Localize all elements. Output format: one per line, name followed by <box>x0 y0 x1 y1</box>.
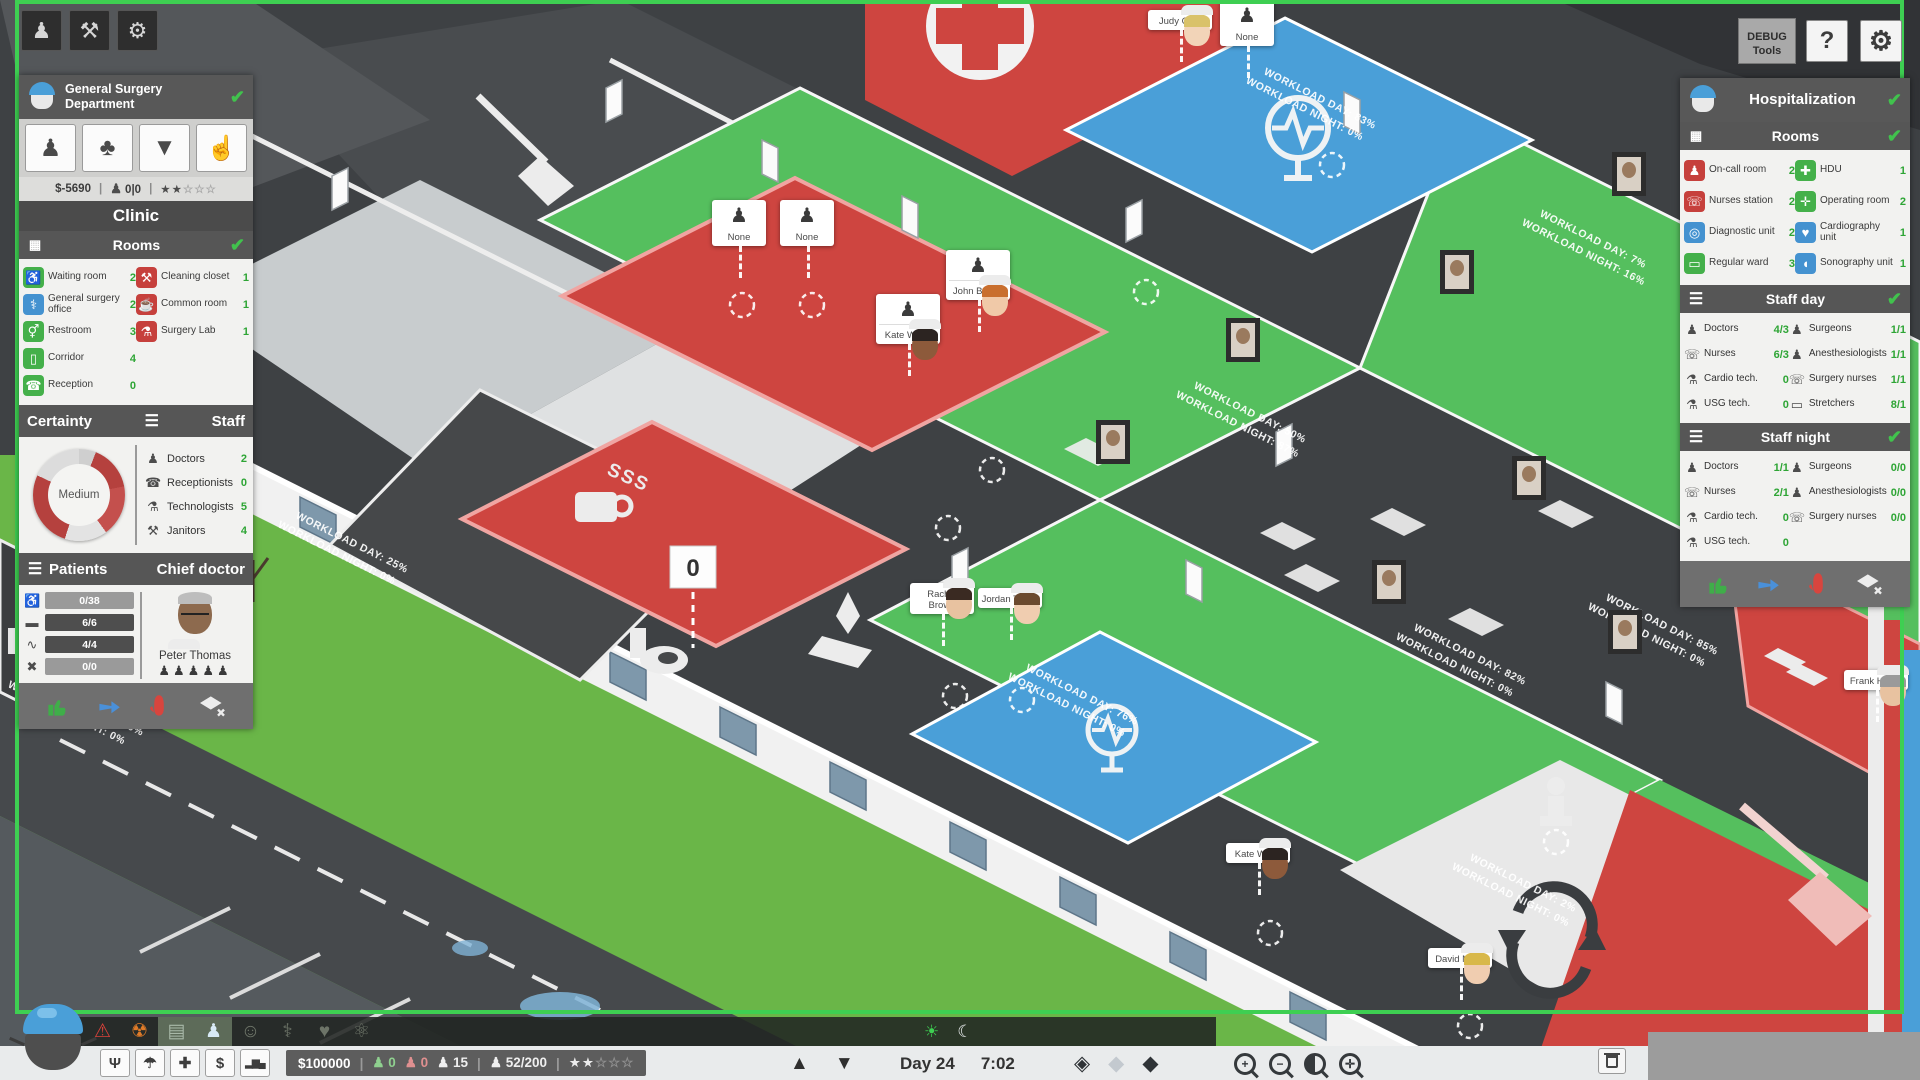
room-list-item[interactable]: ♟ On-call room 2 <box>1684 155 1795 186</box>
staff-list-item[interactable]: ☎ Receptionists 0 <box>145 471 247 495</box>
room-list-item[interactable]: ▯ Corridor 4 <box>23 345 136 372</box>
staff-count: 0/0 <box>1891 512 1906 524</box>
walker-icon: ♟ <box>110 181 122 196</box>
staff-list-item[interactable]: ☏ Surgery nurses 0/0 <box>1789 505 1906 530</box>
patient-stat: ♿ 0/38 <box>24 592 134 609</box>
nurse-icon: ☏ <box>1684 485 1700 501</box>
certainty-title: Certainty <box>27 413 92 430</box>
staff-label: Surgery nurses <box>1809 374 1887 385</box>
room-label: General surgery office <box>48 294 126 315</box>
finance-icon: $ <box>216 1055 224 1072</box>
waiting-room-icon: ♿ <box>23 267 44 288</box>
staff-label: Technologists <box>167 501 235 513</box>
character-name: None <box>715 230 763 243</box>
room-list-item[interactable]: ▭ Regular ward 3 <box>1684 248 1795 279</box>
department-title: General Surgery Department <box>65 82 222 112</box>
room-label: Sonography unit <box>1820 258 1896 269</box>
dept-tab-cardiology[interactable]: ♥ <box>306 1017 343 1046</box>
stats-icon: ▂▆▄ <box>245 1058 264 1069</box>
cardio-tech-icon: ⚗ <box>1684 510 1700 526</box>
stop-button[interactable] <box>144 694 174 718</box>
diagnostics-dept-icon: ▤ <box>168 1020 186 1043</box>
rooms-icon: ▦ <box>27 237 43 253</box>
check-icon: ✔ <box>1887 126 1902 147</box>
patients-title: Patients <box>49 561 107 578</box>
patients-icon: ♟ <box>490 1055 502 1070</box>
operating-room-icon: ✛ <box>1795 191 1816 212</box>
character-name: None <box>783 230 831 243</box>
demolish-button[interactable] <box>1598 1048 1626 1074</box>
department-header[interactable]: General Surgery Department ✔ <box>19 75 253 119</box>
hire-staff-button[interactable]: ♟ <box>25 124 76 172</box>
room-list-item[interactable]: ◎ Diagnostic unit 2 <box>1684 217 1795 248</box>
day-label: Day 24 <box>900 1054 955 1074</box>
dept-tab-orthopedics[interactable]: ⚕ <box>269 1017 306 1046</box>
surgery-office-icon: ⚕ <box>23 294 44 315</box>
check-icon: ✔ <box>230 235 245 256</box>
room-label: Cardiography unit <box>1820 222 1896 243</box>
clinic-title: Clinic <box>113 206 159 226</box>
help-button[interactable]: ? <box>1806 20 1848 62</box>
usg-tech-icon: ⚗ <box>1684 397 1700 413</box>
dept-tab-radiology[interactable]: ☢ <box>121 1017 158 1046</box>
certainty-staff-bar[interactable]: Certainty ☰ Staff <box>19 405 253 437</box>
room-label: Cleaning closet <box>161 272 239 283</box>
character-card[interactable]: ♟ John Brown <box>946 250 1010 300</box>
uniforms-button[interactable]: ▼ <box>139 124 190 172</box>
dept-clinic-icon: ☺ <box>241 1021 260 1043</box>
pickaxe-icon: ⚒ <box>80 18 100 44</box>
ambulance-button[interactable]: ✚ <box>170 1049 200 1077</box>
list-icon: ☰ <box>1688 289 1704 309</box>
character-card[interactable]: Jordan Taylor <box>978 588 1042 608</box>
staff-count: 1/1 <box>1891 374 1906 386</box>
statistics-button[interactable]: ▂▆▄ <box>240 1049 270 1077</box>
hospital-status-bar: $100000 | ♟ 0 ♟ 0 ♟ 15 | ♟ 52/200 | ★★☆☆… <box>286 1050 646 1076</box>
room-count: 1 <box>243 326 249 338</box>
sun-icon[interactable]: ☀ <box>924 1022 939 1042</box>
staff-day-list: ♟ Doctors 4/3 ☏ Nurses 6/3 ⚗ Cardio tech… <box>1680 313 1910 423</box>
room-list-item[interactable]: ⚗ Surgery Lab 1 <box>136 318 249 345</box>
person-icon: ♟ <box>1223 4 1271 30</box>
doctor-icon: ♟ <box>145 451 161 467</box>
staff-count: 1/1 <box>1891 324 1906 336</box>
staff-list-item[interactable]: ☏ Surgery nurses 1/1 <box>1789 367 1906 392</box>
assign-button[interactable] <box>94 694 124 718</box>
top-left-toolbar: ♟⚒⚙ <box>21 10 158 51</box>
room-count: 1 <box>243 299 249 311</box>
rooms-section-title: Rooms <box>49 237 224 253</box>
room-list-item[interactable]: ⚒ Cleaning closet 1 <box>136 264 249 291</box>
restroom-icon <box>1547 777 1565 795</box>
approve-button[interactable] <box>1704 572 1734 596</box>
insurance-button[interactable]: ☂ <box>135 1049 165 1077</box>
regular-ward-icon: ▭ <box>1684 253 1705 274</box>
patient-stat-value: 6/6 <box>45 614 134 631</box>
staff-count: 1/1 <box>1774 462 1789 474</box>
gear-icon: ⚙ <box>128 18 148 44</box>
bed-icon: ▬ <box>24 615 40 630</box>
staff-list-item[interactable]: ⚒ Janitors 4 <box>145 519 247 543</box>
chief-portrait <box>167 592 223 648</box>
clear-floor-button[interactable] <box>195 694 229 718</box>
view-flat-button[interactable]: ◈ <box>1074 1051 1090 1076</box>
staff-alert-count: 0 <box>421 1055 429 1070</box>
zoom-button-4[interactable]: ✛ <box>1339 1053 1361 1075</box>
room-list-item[interactable]: ✚ HDU 1 <box>1795 155 1906 186</box>
staff-list-item[interactable]: ▭ Stretchers 8/1 <box>1789 392 1906 417</box>
doctor-icon: ♟ <box>1684 322 1700 338</box>
department-actions <box>19 683 253 729</box>
floor-down-button[interactable]: ▼ <box>835 1053 854 1075</box>
staff-count: 4/3 <box>1774 324 1789 336</box>
staff-list-item[interactable]: ⚗ Cardio tech. 0 <box>1684 505 1789 530</box>
staff-title: Staff <box>212 413 245 430</box>
certainty-value: Medium <box>59 489 100 501</box>
reception-icon: ☎ <box>23 375 44 396</box>
surgery-nurse-icon: ☏ <box>1789 510 1805 526</box>
rooms-icon: ▦ <box>1688 128 1704 144</box>
dept-neuro-icon: ⚛ <box>353 1020 370 1043</box>
room-list-item[interactable]: ♥ Cardiography unit 1 <box>1795 217 1906 248</box>
surgery-dept-icon: ♟ <box>205 1020 222 1043</box>
patient-stat-value: 0/0 <box>45 658 134 675</box>
room-list-item[interactable]: ⚕ General surgery office 2 <box>23 291 136 318</box>
chief-doctor-name: Peter Thomas <box>142 650 248 662</box>
staff-label: Nurses <box>1704 349 1770 360</box>
room-list-item[interactable]: ☕ Common room 1 <box>136 291 249 318</box>
trash-icon <box>1606 1055 1618 1068</box>
staff-count: 6/3 <box>1774 349 1789 361</box>
patients-body: ♿ 0/38 ▬ 6/6 ∿ 4/4 ✖ 0/0 Peter Thomas ♟♟… <box>19 585 253 683</box>
cleaning-closet-icon: ⚒ <box>136 267 157 288</box>
clear-floor-button[interactable] <box>1852 572 1886 596</box>
debug-tools-button[interactable]: DEBUG Tools <box>1738 18 1796 64</box>
surgery-lab-icon: ⚗ <box>136 321 157 342</box>
sonography-unit-icon: ◖ <box>1795 253 1816 274</box>
staff-label: Janitors <box>167 525 235 537</box>
check-icon: ✔ <box>1887 289 1902 310</box>
shirt-icon: ▼ <box>153 134 177 162</box>
visitors-icon: ♟ <box>437 1055 449 1070</box>
room-label: Reception <box>48 380 126 391</box>
room-label: HDU <box>1820 165 1896 176</box>
certainty-gauge[interactable]: Medium <box>33 449 125 541</box>
finance-button[interactable]: $ <box>205 1049 235 1077</box>
staff-count: 5 <box>241 501 247 513</box>
department-tools: ♟♣▼☝ <box>19 119 253 177</box>
gear-icon: ⚙ <box>1869 26 1893 57</box>
department-panel: General Surgery Department ✔ ♟♣▼☝ $-5690… <box>19 75 253 729</box>
ambulance-icon: ✚ <box>179 1054 192 1072</box>
seat-icon: ♿ <box>24 593 40 609</box>
person-icon: ♟ <box>32 18 52 44</box>
surgeon-icon <box>1688 85 1718 115</box>
room-list-item[interactable]: ⚥ Restroom 3 <box>23 318 136 345</box>
patient-stat: ∿ 4/4 <box>24 636 134 653</box>
department-walkers: 0|0 <box>125 184 141 196</box>
character-card[interactable]: ♟ Kate White <box>876 294 940 344</box>
department-status: $-5690 | ♟ 0|0 | ★★☆☆☆ <box>19 177 253 201</box>
staff-label: Surgery nurses <box>1809 512 1887 523</box>
staff-day-bar[interactable]: ☰ Staff day ✔ <box>1680 285 1910 313</box>
pulse-icon: ∿ <box>24 637 40 653</box>
room-list-item[interactable]: ♿ Waiting room 2 <box>23 264 136 291</box>
common-room-icon: ☕ <box>136 294 157 315</box>
staff-label: Cardio tech. <box>1704 374 1779 385</box>
moon-icon[interactable]: ☾ <box>957 1022 972 1042</box>
staff-label: Doctors <box>167 453 235 465</box>
staff-list-item[interactable]: ☏ Nurses 2/1 <box>1684 480 1789 505</box>
staff-day-title: Staff day <box>1710 291 1881 307</box>
build-button[interactable]: ⚒ <box>69 10 110 51</box>
staff-list-item[interactable]: ♟ Surgeons 1/1 <box>1789 317 1906 342</box>
surgeon-icon <box>27 82 57 112</box>
zoom-button-3[interactable] <box>1304 1053 1326 1075</box>
staff-list-item[interactable]: ♟ Anesthesiologists 1/1 <box>1789 342 1906 367</box>
network-icon: Ψ <box>109 1055 121 1072</box>
character-card[interactable]: Rachel Brown <box>910 583 974 614</box>
room-label: Nurses station <box>1709 196 1785 207</box>
patients-chief-bar[interactable]: ☰ Patients Chief doctor <box>19 553 253 585</box>
character-card[interactable]: Kate White <box>1226 843 1290 863</box>
puddle <box>520 992 600 1020</box>
cross-icon: ✖ <box>24 659 40 675</box>
approve-button[interactable] <box>43 694 73 718</box>
anesthesiologist-icon: ♟ <box>1789 485 1805 501</box>
staff-label: Doctors <box>1704 462 1770 473</box>
staff-count: 4 <box>241 525 247 537</box>
tree-icon: ♣ <box>100 134 116 162</box>
on-call-room-icon: ♟ <box>1684 160 1705 181</box>
room-list-item[interactable]: ✛ Operating room 2 <box>1795 186 1906 217</box>
clinic-rooms-list: ♿ Waiting room 2 ⚕ General surgery offic… <box>19 259 253 405</box>
cardio-tech-icon: ⚗ <box>1684 372 1700 388</box>
staff-night-title: Staff night <box>1710 429 1881 445</box>
quick-buttons: Ψ ☂ ✚ $ ▂▆▄ <box>100 1049 270 1077</box>
dept-tab-clinic[interactable]: ☺ <box>232 1017 269 1046</box>
environment-button[interactable]: ♣ <box>82 124 133 172</box>
hospital-map[interactable]: SSS 0 <box>0 0 1920 1080</box>
janitor-icon: ⚒ <box>145 523 161 539</box>
staff-label: USG tech. <box>1704 399 1779 410</box>
hospitalization-panel: Hospitalization ✔ ▦ Rooms ✔ ♟ On-call ro… <box>1680 78 1910 607</box>
patient-stat: ▬ 6/6 <box>24 614 134 631</box>
patient-stat-value: 4/4 <box>45 636 134 653</box>
hdu-icon: ✚ <box>1795 160 1816 181</box>
department-rating: ★★☆☆☆ <box>160 182 217 196</box>
staff-label: USG tech. <box>1704 537 1779 548</box>
clinic-title-bar: Clinic <box>19 201 253 231</box>
policies-button[interactable]: ☝ <box>196 124 247 172</box>
character-card[interactable]: ♟None <box>712 200 766 246</box>
person-icon: ♟ <box>715 204 763 230</box>
staff-list-item[interactable]: ♟ Surgeons 0/0 <box>1789 455 1906 480</box>
room-count: 2 <box>1900 196 1906 208</box>
hospitalization-actions <box>1680 561 1910 607</box>
view-3d-button[interactable]: ◆ <box>1142 1051 1158 1076</box>
staff-count: 0 <box>241 477 247 489</box>
dept-ortho-icon: ⚕ <box>282 1020 292 1043</box>
room-label: Restroom <box>48 326 126 337</box>
departments-button[interactable]: Ψ <box>100 1049 130 1077</box>
character-card[interactable]: David Miller <box>1428 948 1492 968</box>
room-list-item[interactable]: ☎ Reception 0 <box>23 372 136 399</box>
character-card[interactable]: ♟None <box>1220 0 1274 46</box>
chief-slots: ♟♟♟♟♟ <box>142 663 248 679</box>
room-count: 1 <box>243 272 249 284</box>
chief-doctor-title: Chief doctor <box>157 561 245 578</box>
patients-count: 52/200 <box>506 1055 547 1070</box>
stretcher-icon: ▭ <box>1789 397 1805 413</box>
room-label: Regular ward <box>1709 258 1785 269</box>
surgeon-icon: ♟ <box>1789 322 1805 338</box>
zoom-controls: +−✛ <box>1234 1053 1361 1075</box>
visitors-count: 15 <box>453 1055 468 1070</box>
player-avatar[interactable] <box>10 1004 96 1078</box>
restroom-icon: ⚥ <box>23 321 44 342</box>
receptionist-icon: ☎ <box>145 475 161 491</box>
staff-count: 0/0 <box>1891 462 1906 474</box>
room-label: Waiting room <box>48 272 126 283</box>
rooms-section-title: Rooms <box>1710 128 1881 144</box>
room-list-item[interactable]: ◖ Sonography unit 1 <box>1795 248 1906 279</box>
radiology-icon: ☢ <box>131 1020 148 1043</box>
character-name: None <box>1223 30 1271 43</box>
staff-alert-icon: ♟ <box>405 1055 417 1070</box>
diagnostic-unit-icon: ◎ <box>1684 222 1705 243</box>
character-card[interactable]: Judy Cole <box>1148 10 1212 30</box>
staff-count: 2/1 <box>1774 487 1789 499</box>
surgery-nurse-icon: ☏ <box>1789 372 1805 388</box>
dept-cardio-icon: ♥ <box>319 1021 330 1043</box>
room-label: Corridor <box>48 353 126 364</box>
person-icon: ♟ <box>783 204 831 230</box>
queue-counter-value: 0 <box>686 555 699 582</box>
staff-label: Nurses <box>1704 487 1770 498</box>
list-icon: ☰ <box>27 559 43 579</box>
character-card[interactable]: Frank Harris <box>1844 670 1908 690</box>
room-label: Surgery Lab <box>161 326 239 337</box>
room-label: Diagnostic unit <box>1709 227 1785 238</box>
zoom-button-1[interactable]: + <box>1234 1053 1256 1075</box>
room-count: 1 <box>1900 165 1906 177</box>
hand-icon: ☝ <box>207 134 237 163</box>
staff-count: 0/0 <box>1891 487 1906 499</box>
staff-ok-icon: ♟ <box>372 1055 384 1070</box>
rooms-section-bar[interactable]: ▦ Rooms ✔ <box>19 231 253 259</box>
anesthesiologist-icon: ♟ <box>1789 347 1805 363</box>
dept-tab-neurology[interactable]: ⚛ <box>343 1017 380 1046</box>
staff-list-item[interactable]: ⚗ Cardio tech. 0 <box>1684 367 1789 392</box>
list-icon: ☰ <box>145 413 159 430</box>
corridor-icon: ▯ <box>23 348 44 369</box>
patient-stat-value: 0/38 <box>45 592 134 609</box>
list-icon: ☰ <box>1688 427 1704 447</box>
staff-ok-count: 0 <box>388 1055 396 1070</box>
glasses <box>181 608 209 615</box>
staff-list-item[interactable]: ☏ Nurses 6/3 <box>1684 342 1789 367</box>
insurance-icon: ☂ <box>143 1054 156 1072</box>
dept-tab-surgery[interactable]: ♟ <box>195 1017 232 1046</box>
staff-count: 2 <box>241 453 247 465</box>
certainty-staff-body: Medium ♟ Doctors 2 ☎ Receptionists 0 ⚗ T… <box>19 437 253 553</box>
staff-label: Cardio tech. <box>1704 512 1779 523</box>
person-add-icon: ♟ <box>40 134 62 163</box>
cardiography-unit-icon: ♥ <box>1795 222 1816 243</box>
staff-count: 8/1 <box>1891 399 1906 411</box>
hospital-money: $100000 <box>298 1056 351 1071</box>
hospitalization-header[interactable]: Hospitalization ✔ <box>1680 78 1910 122</box>
hospital-rating: ★★☆☆☆ <box>569 1055 635 1071</box>
staff-list-item[interactable]: ♟ Doctors 2 <box>145 447 247 471</box>
hospitalization-title: Hospitalization <box>1726 91 1879 109</box>
chief-doctor-card[interactable]: Peter Thomas ♟♟♟♟♟ <box>142 592 248 679</box>
hospitalization-rooms-list: ♟ On-call room 2 ☏ Nurses station 2 ◎ Di… <box>1680 150 1910 285</box>
check-icon: ✔ <box>1887 90 1902 111</box>
department-money: $-5690 <box>55 183 91 195</box>
staff-night-list: ♟ Doctors 1/1 ☏ Nurses 2/1 ⚗ Cardio tech… <box>1680 451 1910 561</box>
staff-label: Surgeons <box>1809 324 1887 335</box>
staff-label: Doctors <box>1704 324 1770 335</box>
character-card[interactable]: ♟None <box>780 200 834 246</box>
check-icon: ✔ <box>1887 427 1902 448</box>
staff-list-item[interactable]: ⚗ Technologists 5 <box>145 495 247 519</box>
usg-tech-icon: ⚗ <box>1684 535 1700 551</box>
game-screen: SSS 0 WORKLOAD DAY: 25%WORKLOAD NIGHT: 0… <box>0 0 1920 1080</box>
patient-stat: ✖ 0/0 <box>24 658 134 675</box>
rooms-section-bar[interactable]: ▦ Rooms ✔ <box>1680 122 1910 150</box>
staff-label: Receptionists <box>167 477 235 489</box>
time-label: 7:02 <box>981 1054 1015 1074</box>
staff-night-bar[interactable]: ☰ Staff night ✔ <box>1680 423 1910 451</box>
nurses-station-icon: ☏ <box>1684 191 1705 212</box>
assign-button[interactable] <box>1753 572 1783 596</box>
department-tab-strip: ⚠ ☢ ▤ ♟ ☺ ⚕ ♥ ⚛ ☀ ☾ <box>76 1017 1216 1046</box>
room-label: On-call room <box>1709 165 1785 176</box>
room-count: 1 <box>1900 258 1906 270</box>
staff-label: Anesthesiologists <box>1809 349 1887 360</box>
settings-button[interactable]: ⚙ <box>1860 20 1902 62</box>
management-button[interactable]: ⚙ <box>117 10 158 51</box>
floor-up-button[interactable]: ▲ <box>790 1053 809 1075</box>
nurse-icon: ☏ <box>1684 347 1700 363</box>
dept-tab-diagnostics[interactable]: ▤ <box>158 1017 195 1046</box>
staff-label: Anesthesiologists <box>1809 487 1887 498</box>
doctor-icon: ♟ <box>1684 460 1700 476</box>
staff-list-item[interactable]: ♟ Doctors 4/3 <box>1684 317 1789 342</box>
check-icon: ✔ <box>230 87 245 108</box>
staff-label: Surgeons <box>1809 462 1887 473</box>
stop-button[interactable] <box>1803 572 1833 596</box>
staff-list-item[interactable]: ⚗ USG tech. 0 <box>1684 530 1789 555</box>
zoom-button-2[interactable]: − <box>1269 1053 1291 1075</box>
room-count: 1 <box>1900 227 1906 239</box>
staff-button[interactable]: ♟ <box>21 10 62 51</box>
staff-list-item[interactable]: ♟ Doctors 1/1 <box>1684 455 1789 480</box>
room-list-item[interactable]: ☏ Nurses station 2 <box>1684 186 1795 217</box>
view-transparent-button[interactable]: ◆ <box>1108 1051 1124 1076</box>
staff-count: 1/1 <box>1891 349 1906 361</box>
minimap-panel[interactable] <box>1648 1032 1920 1080</box>
staff-label: Stretchers <box>1809 399 1887 410</box>
room-label: Operating room <box>1820 196 1896 207</box>
technologist-icon: ⚗ <box>145 499 161 515</box>
surgeon-icon: ♟ <box>1789 460 1805 476</box>
room-label: Common room <box>161 299 239 310</box>
staff-list-item[interactable]: ⚗ USG tech. 0 <box>1684 392 1789 417</box>
staff-list-item[interactable]: ♟ Anesthesiologists 0/0 <box>1789 480 1906 505</box>
